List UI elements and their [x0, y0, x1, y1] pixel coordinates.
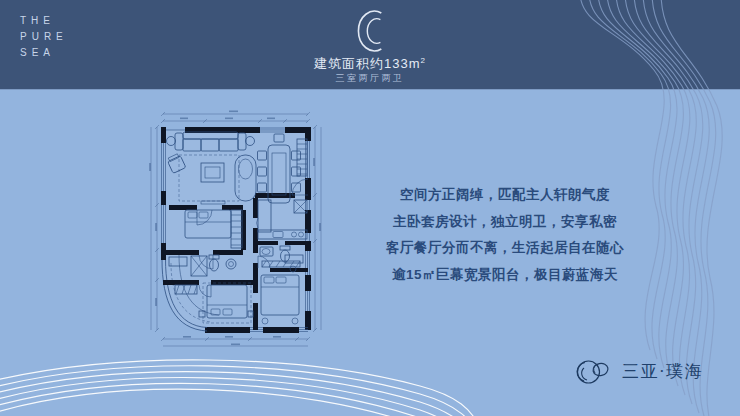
description-block: 空间方正阔绰，匹配主人轩朗气度 主卧套房设计，独立明卫，安享私密 客厅餐厅分而不… [385, 182, 625, 288]
description-line: 空间方正阔绰，匹配主人轩朗气度 [385, 182, 625, 209]
area-text: 建筑面积约133m2 [0, 55, 740, 73]
area-superscript: 2 [421, 56, 426, 65]
description-line: 主卧套房设计，独立明卫，安享私密 [385, 209, 625, 236]
unit-c-emblem [353, 9, 387, 53]
description-line: 逾15㎡巨幕宽景阳台，极目蔚蓝海天 [385, 262, 625, 289]
poster: THE PURE SEA 建筑面积约133m2 三室两厅两卫 [0, 0, 740, 416]
description-line: 客厅餐厅分而不离，生活起居自在随心 [385, 235, 625, 262]
project-name: 三亚·璞海 [622, 360, 703, 383]
shell-circles-icon [576, 356, 610, 386]
brand-wordmark: THE PURE SEA [20, 13, 68, 61]
brand-line: THE [20, 13, 68, 29]
brand-line: PURE [20, 29, 68, 45]
layout-text: 三室两厅两卫 [0, 72, 740, 85]
footer-brand: 三亚·璞海 [576, 354, 703, 388]
floor-plan [145, 103, 377, 365]
area-value: 建筑面积约133m [314, 56, 421, 71]
